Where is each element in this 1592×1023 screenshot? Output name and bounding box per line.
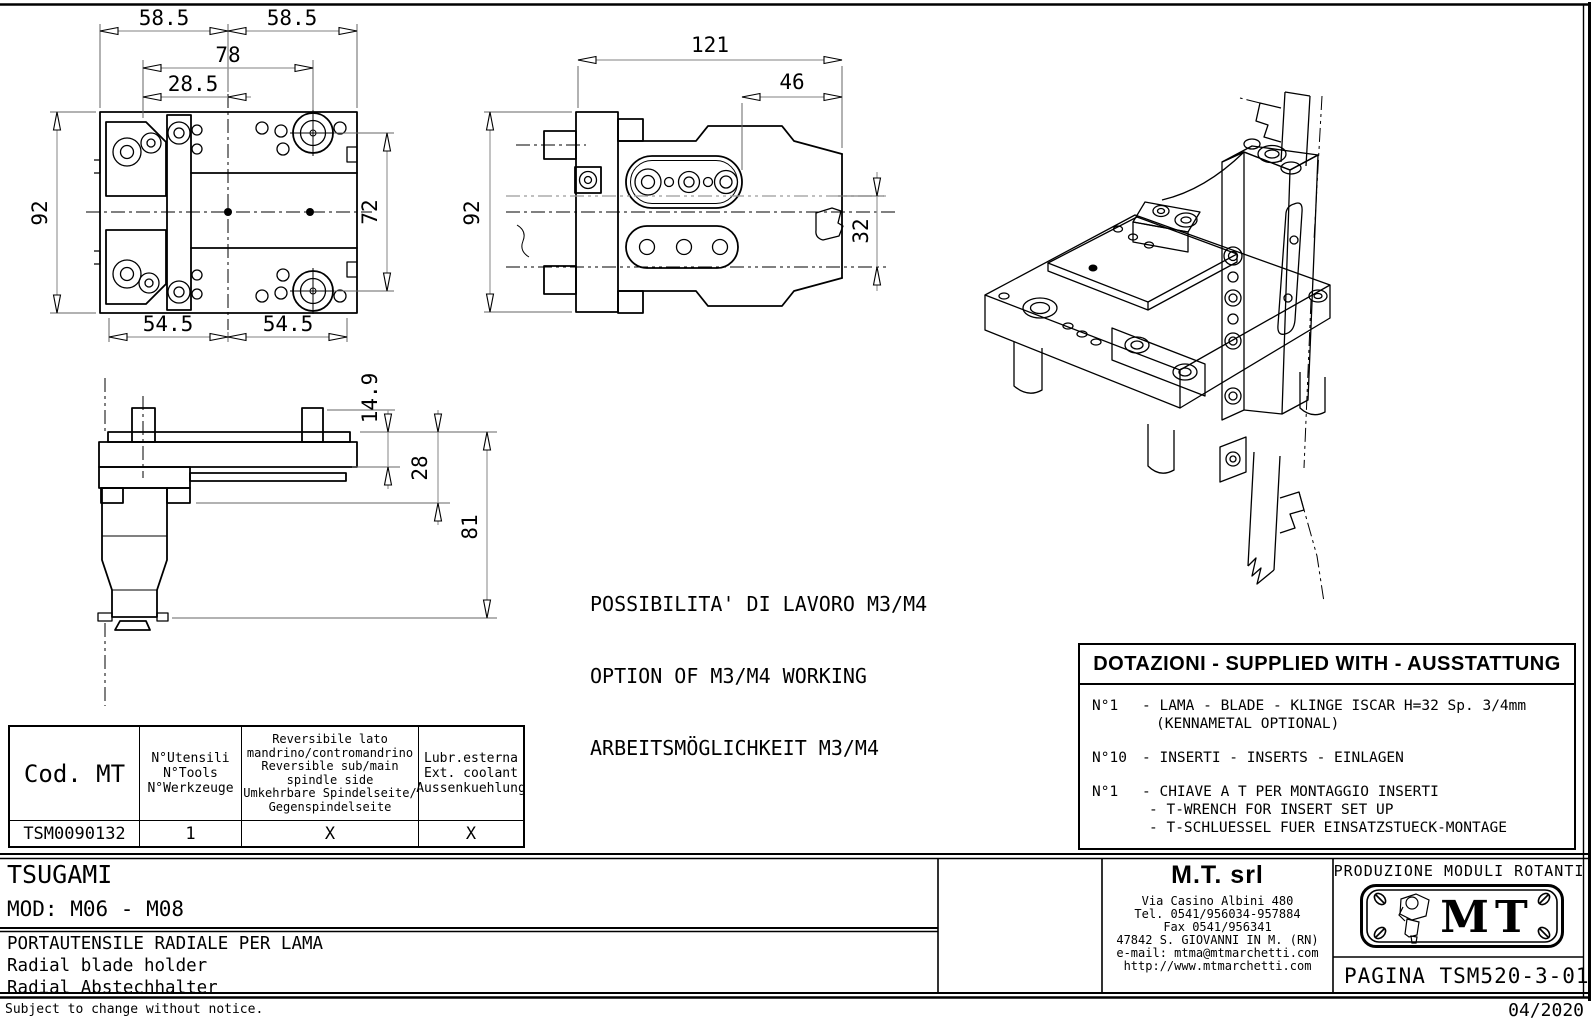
front-view: 14.9 28 81: [98, 373, 497, 706]
dim-92: 92: [28, 200, 52, 225]
header-line: Lubr.esterna: [424, 751, 518, 766]
spec-value-reversible: X: [242, 821, 419, 846]
part-title-de: Radial Abstechhalter: [7, 978, 218, 998]
spec-header-coolant: Lubr.esterna Ext. coolant Aussenkuehlung: [419, 727, 523, 821]
sheet-frame: [0, 2, 1590, 1001]
supplied-with-title: DOTAZIONI - SUPPLIED WITH - AUSSTATTUNG: [1080, 645, 1574, 685]
spec-table: Cod. MT N°Utensili N°Tools N°Werkzeuge R…: [8, 725, 525, 848]
header-line: Aussenkuehlung: [416, 781, 526, 796]
mt-logo-graphic: MT: [1363, 887, 1561, 945]
item-text: - T-WRENCH FOR INSERT SET UP: [1142, 801, 1507, 819]
working-options-note: POSSIBILITA' DI LAVORO M3/M4 OPTION OF M…: [590, 544, 927, 808]
note-line-de: ARBEITSMÖGLICHKEIT M3/M4: [590, 736, 927, 760]
header-line: spindle side: [287, 774, 374, 788]
dim-28: 28: [408, 455, 432, 480]
note-line-en: OPTION OF M3/M4 WORKING: [590, 664, 927, 688]
dim-58-5-left: 58.5: [139, 6, 190, 30]
dim-58-5-right: 58.5: [267, 6, 318, 30]
dim-121: 121: [691, 33, 729, 57]
header-line: N°Tools: [163, 766, 218, 781]
item-text: - T-SCHLUESSEL FUER EINSATZSTUECK-MONTAG…: [1142, 819, 1507, 837]
item-text: (KENNAMETAL OPTIONAL): [1142, 715, 1526, 733]
change-notice: Subject to change without notice.: [5, 1002, 263, 1017]
spec-value-tools: 1: [140, 821, 242, 846]
header-line: Ext. coolant: [424, 766, 518, 781]
page-number: PAGINA TSM520-3-01: [1344, 964, 1590, 988]
header-line: Gegenspindelseite: [269, 801, 392, 815]
dim-81: 81: [458, 514, 482, 539]
spec-header-reversible: Reversibile lato mandrino/contromandrino…: [242, 727, 419, 821]
logo-machine-icon: [1399, 894, 1429, 943]
drawing-sheet: 58.5 58.5 78 28.5 92 72 54.5 54.5: [0, 0, 1592, 1023]
item-text: - INSERTI - INSERTS - EINLAGEN: [1142, 749, 1404, 767]
dim-54-5-right: 54.5: [263, 312, 314, 336]
revision-date: 04/2020: [1498, 1000, 1584, 1021]
supplied-item-blade: N°1 - LAMA - BLADE - KLINGE ISCAR H=32 S…: [1092, 697, 1568, 733]
supplied-item-inserts: N°10 - INSERTI - INSERTS - EINLAGEN: [1092, 749, 1568, 767]
logo-text: MT: [1440, 892, 1533, 943]
manufacturer-website: http://www.mtmarchetti.com: [1102, 960, 1333, 973]
machine-model: MOD: M06 - M08: [7, 897, 184, 921]
part-title-it: PORTAUTENSILE RADIALE PER LAMA: [7, 934, 323, 954]
dim-54-5-left: 54.5: [143, 312, 194, 336]
item-qty: N°1: [1092, 783, 1142, 837]
dim-28-5: 28.5: [168, 72, 219, 96]
item-qty: N°1: [1092, 697, 1142, 733]
spec-header-tools: N°Utensili N°Tools N°Werkzeuge: [140, 727, 242, 821]
dim-46: 46: [779, 70, 804, 94]
manufacturer-name: M.T. srl: [1102, 860, 1333, 890]
dim-78: 78: [215, 43, 240, 67]
supplied-item-wrench: N°1 - CHIAVE A T PER MONTAGGIO INSERTI -…: [1092, 783, 1568, 837]
header-line: Reversibile lato: [272, 733, 388, 747]
item-text: - CHIAVE A T PER MONTAGGIO INSERTI: [1142, 783, 1507, 801]
item-qty: N°10: [1092, 749, 1142, 767]
supplied-with-box: DOTAZIONI - SUPPLIED WITH - AUSSTATTUNG …: [1078, 643, 1576, 850]
header-line: N°Werkzeuge: [147, 781, 233, 796]
header-line: N°Utensili: [151, 751, 229, 766]
manufacturer-block: M.T. srl Via Casino Albini 480 Tel. 0541…: [1102, 860, 1333, 973]
dim-92-side: 92: [460, 200, 484, 225]
isometric-view: [985, 92, 1330, 602]
plan-view: 58.5 58.5 78 28.5 92 72 54.5 54.5: [28, 6, 394, 342]
spec-value-coolant: X: [419, 821, 523, 846]
note-line-it: POSSIBILITA' DI LAVORO M3/M4: [590, 592, 927, 616]
dim-32: 32: [849, 218, 873, 243]
part-title-en: Radial blade holder: [7, 956, 207, 976]
spec-value-code: TSM0090132: [10, 821, 140, 846]
dim-14-9: 14.9: [358, 373, 382, 424]
production-label: PRODUZIONE MODULI ROTANTI: [1333, 862, 1585, 880]
customer-brand: TSUGAMI: [7, 860, 112, 889]
mt-logo: MT: [1360, 884, 1564, 948]
side-view: 121 46 92 32: [460, 33, 898, 313]
item-text: - LAMA - BLADE - KLINGE ISCAR H=32 Sp. 3…: [1142, 697, 1526, 715]
spec-header-code: Cod. MT: [10, 727, 140, 821]
header-line: Reversible sub/main: [261, 760, 398, 774]
header-line: mandrino/contromandrino: [247, 747, 413, 761]
header-line: Umkehrbare Spindelseite/: [243, 787, 416, 801]
dim-72: 72: [358, 199, 382, 224]
